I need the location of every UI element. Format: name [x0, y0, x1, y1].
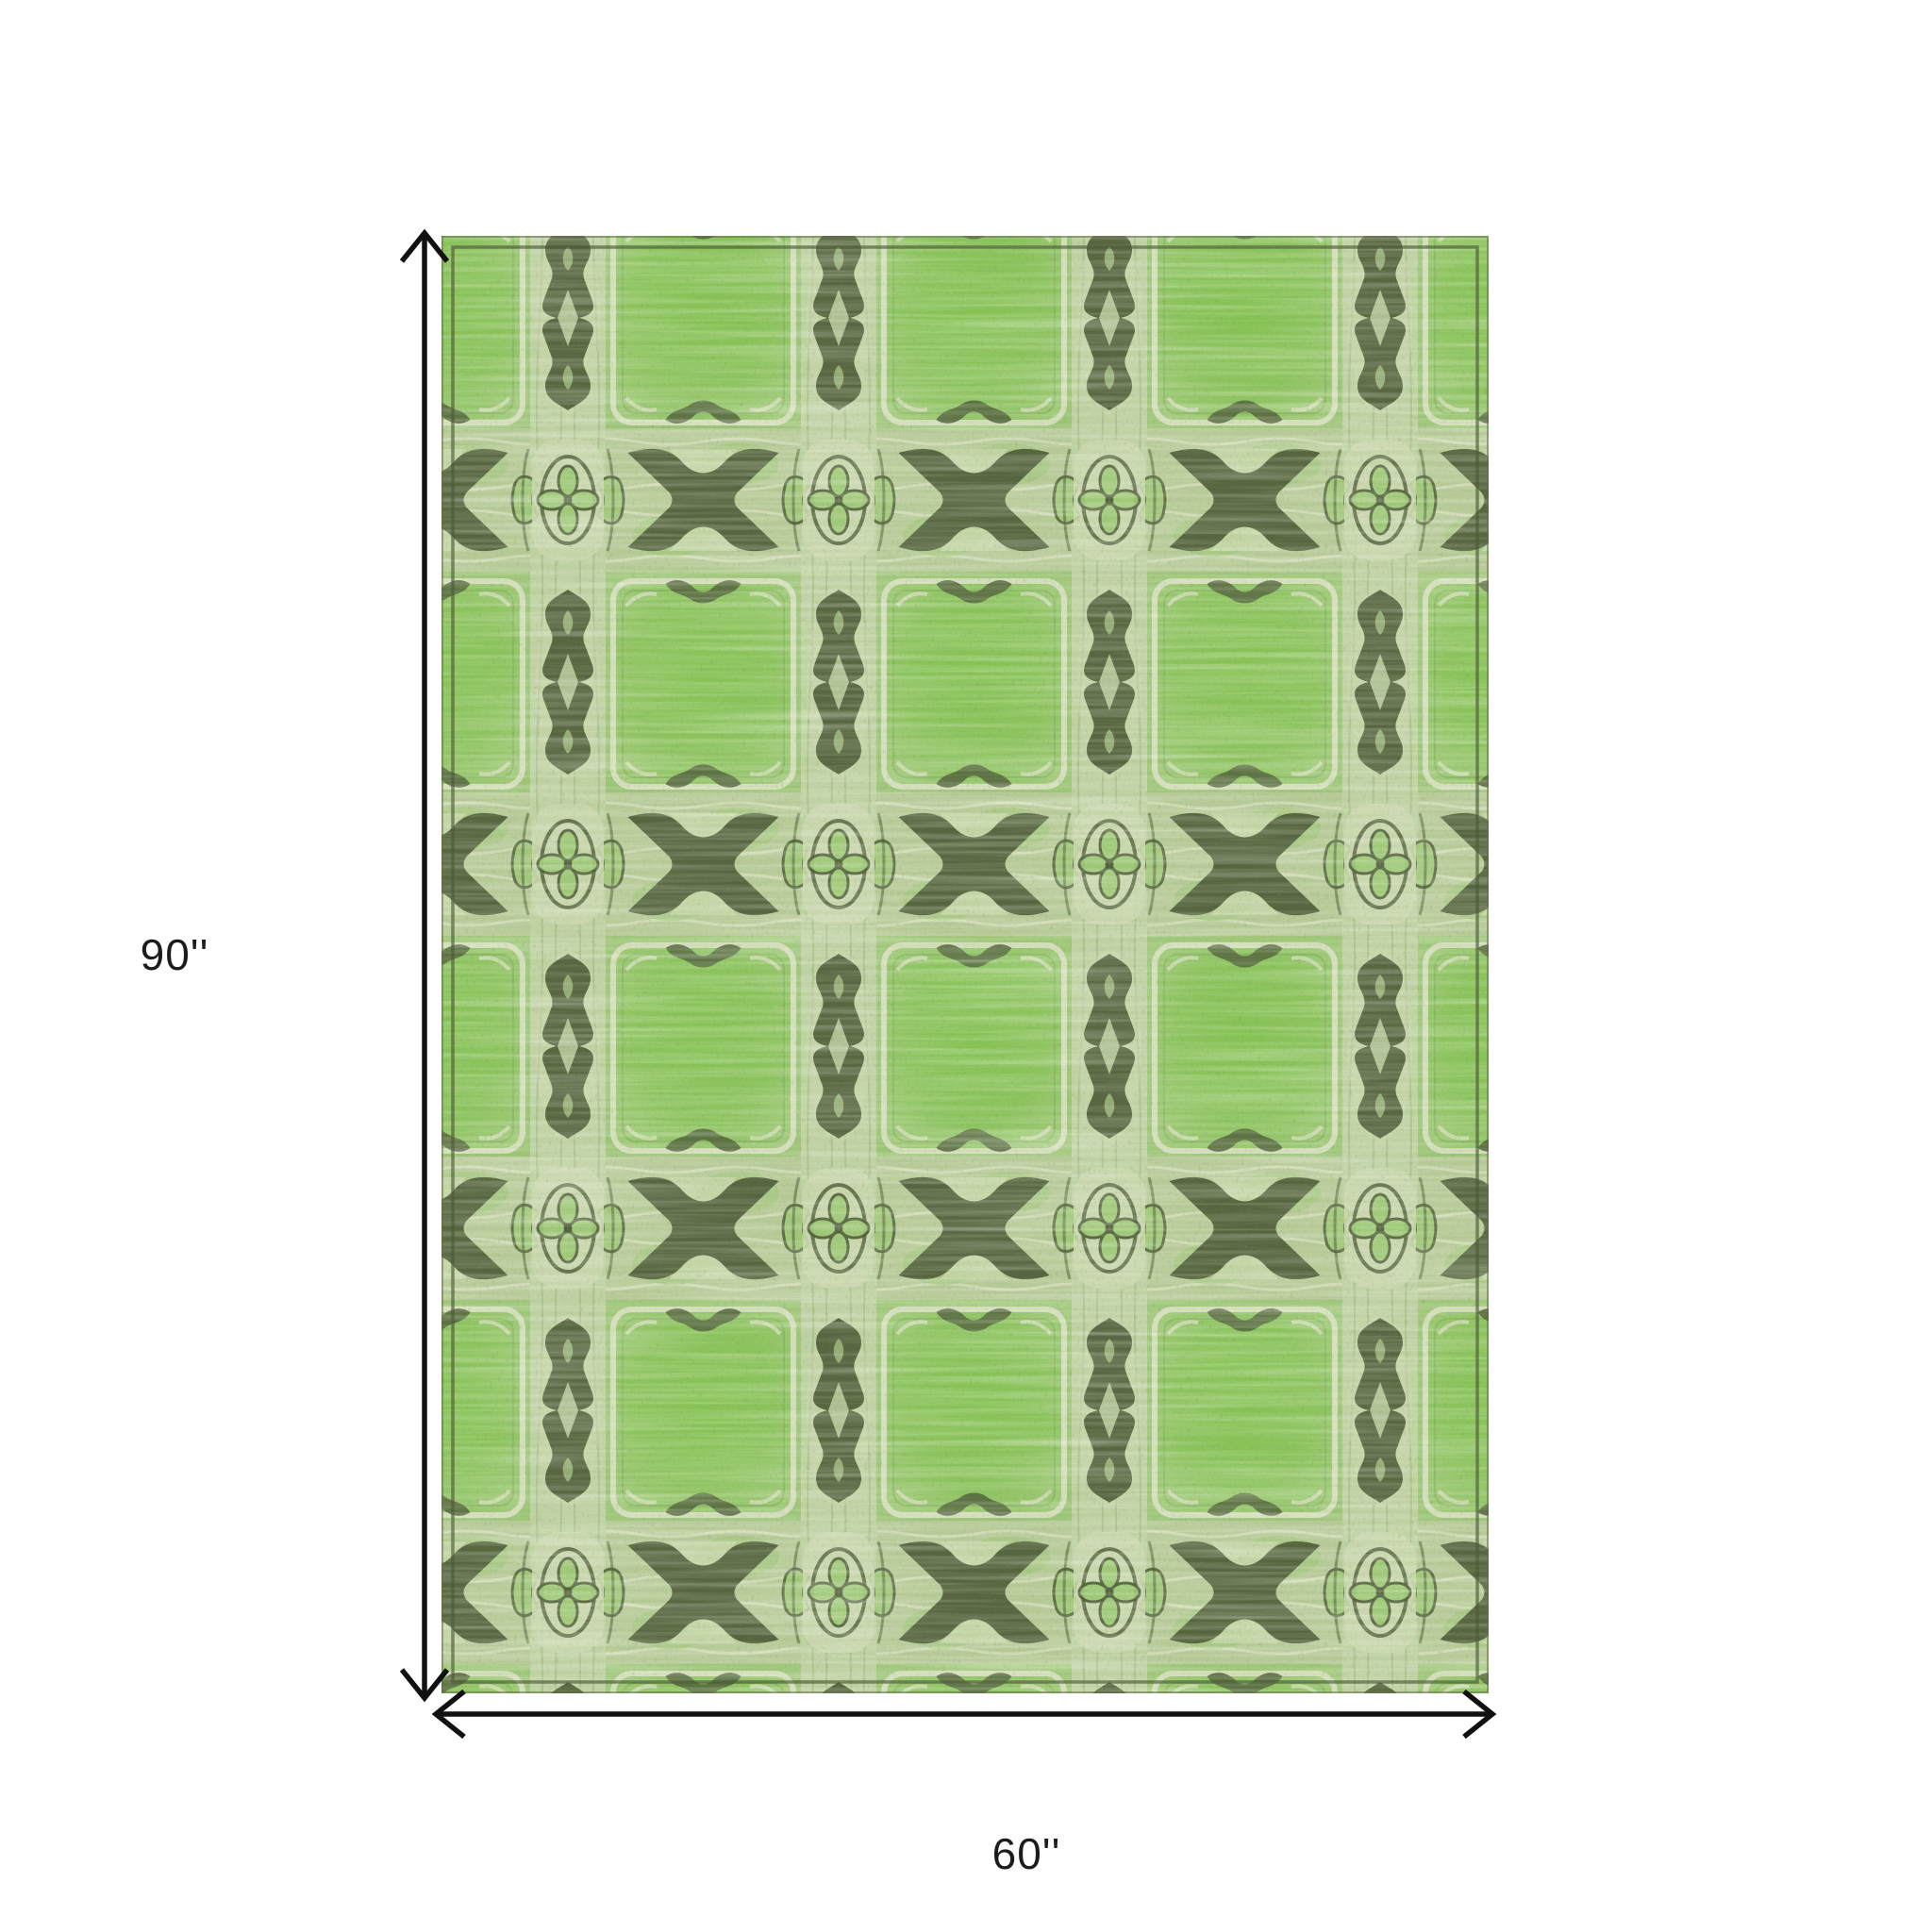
height-dimension-label: 90'': [104, 933, 245, 976]
width-dimension-label: 60'': [956, 1832, 1097, 1875]
rug-product-image: [441, 236, 1489, 1693]
height-arrow: [402, 233, 447, 1698]
product-dimension-diagram: 90'' 60'': [0, 0, 1932, 1932]
width-arrow: [436, 1691, 1492, 1737]
